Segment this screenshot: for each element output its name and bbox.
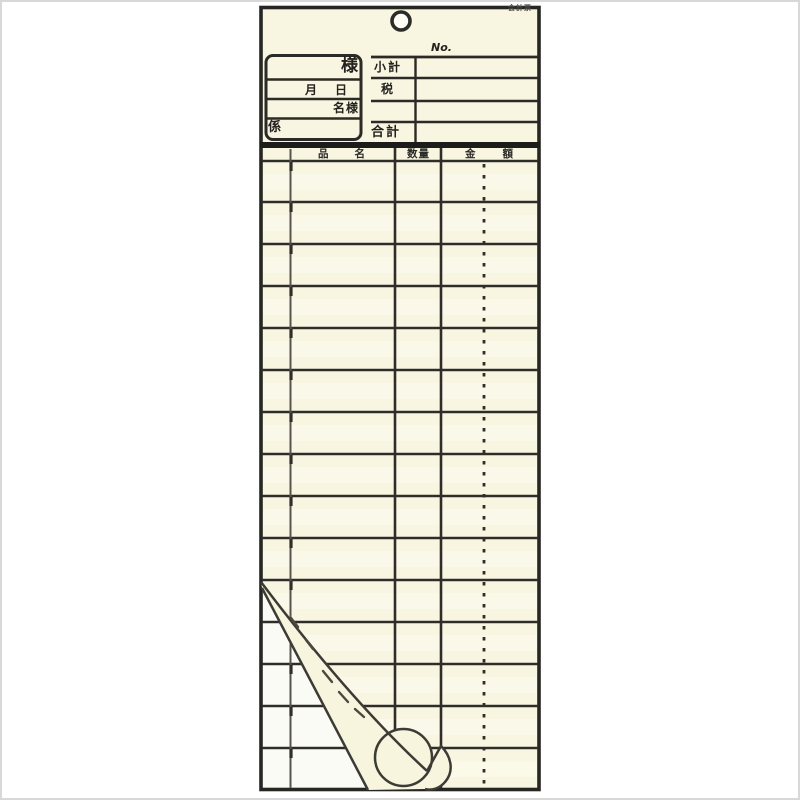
subtotal-label: 小計 — [374, 61, 402, 73]
punch-hole-icon — [392, 12, 410, 30]
order-slip-sheet — [0, 0, 800, 800]
date-label: 月日 — [305, 84, 365, 96]
total-label: 合計 — [371, 126, 401, 139]
row-ticks — [289, 162, 292, 758]
guest-count-label: 名様 — [333, 102, 359, 114]
customer-suffix-label: 様 — [341, 58, 358, 75]
column-header-item: 品名 — [318, 149, 391, 160]
column-header-amount: 金額 — [465, 149, 540, 160]
slip-number-label: No. — [431, 42, 452, 53]
column-header-quantity: 数量 — [407, 149, 430, 160]
curl-roll-end — [375, 729, 432, 786]
server-label: 係 — [268, 121, 281, 134]
product-photo: 会計票 様 月日 名様 係 No. 小計 税 合計 品名 数量 金額 — [0, 0, 800, 800]
form-code-text: 会計票 — [508, 5, 532, 12]
tax-label: 税 — [381, 83, 393, 95]
